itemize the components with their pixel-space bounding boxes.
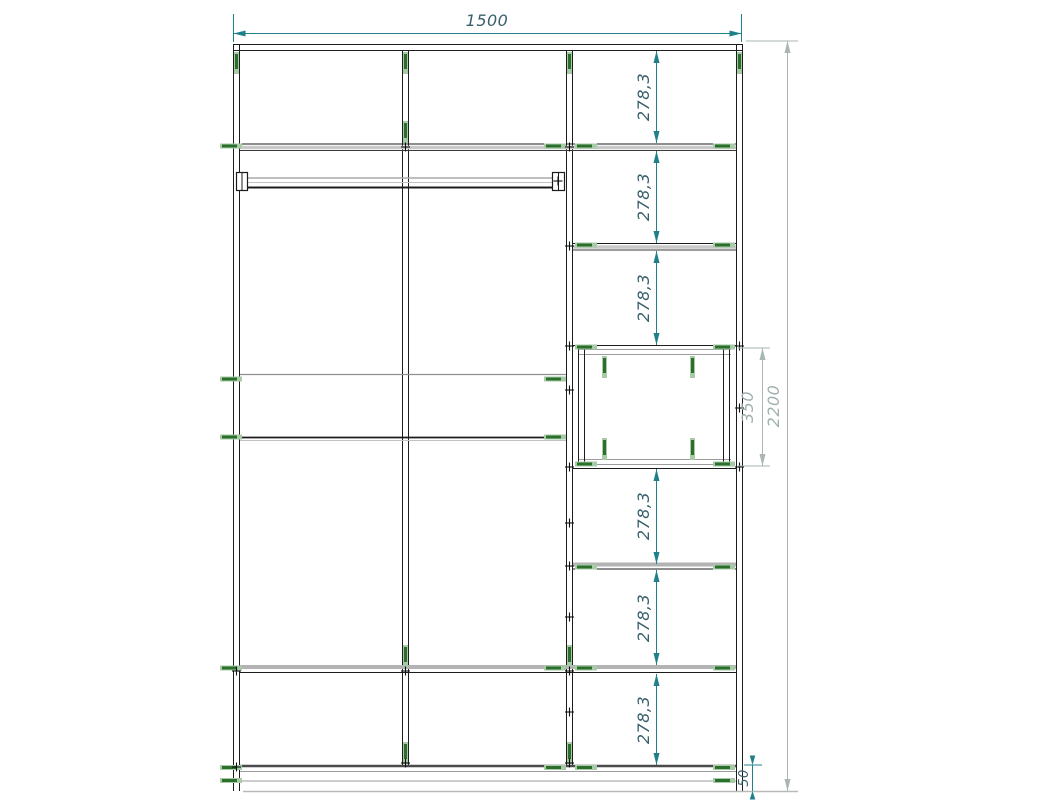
cad-drawing-canvas: 1500 278,3 278,3 278,3 278,3 278,3 278,3… (0, 0, 1037, 801)
shelf-spacing-label-1: 278,3 (634, 73, 653, 121)
rod-bracket-left (237, 172, 248, 191)
shelf-right-column-5 (573, 565, 736, 570)
dimension-total-width: 1500 (234, 11, 742, 42)
hanging-rod (237, 172, 565, 191)
compartment-height-label: 350 (738, 391, 757, 423)
inset-box-compartment (573, 346, 736, 469)
dimension-plinth-height: 50 (737, 756, 762, 800)
top-panel (233, 45, 742, 51)
wardrobe-elevation-drawing: 1500 278,3 278,3 278,3 278,3 278,3 278,3… (0, 0, 1037, 801)
carcass-panels (233, 44, 743, 791)
shelf-spacing-label-2: 278,3 (634, 173, 653, 221)
shelf-bottom-full-width (240, 667, 736, 673)
left-side-panel (234, 44, 240, 791)
shelf-right-column-2 (573, 244, 736, 251)
total-height-label: 2200 (764, 385, 783, 428)
plinth-height-label: 50 (737, 769, 752, 787)
box-left-wall (579, 349, 585, 466)
shelves (240, 144, 736, 673)
dimension-shelf-spacings: 278,3 278,3 278,3 278,3 278,3 278,3 (634, 51, 657, 765)
shelf-spacing-label-4: 278,3 (634, 492, 653, 540)
box-right-wall (724, 349, 730, 466)
shelf-spacing-label-5: 278,3 (634, 594, 653, 642)
screw-markers (220, 52, 742, 783)
shelf-top-full-width (240, 144, 736, 151)
shelf-spacing-label-6: 278,3 (634, 696, 653, 744)
total-width-label: 1500 (466, 11, 509, 30)
shelf-spacing-label-3: 278,3 (634, 274, 653, 322)
cross-markers (232, 143, 744, 772)
